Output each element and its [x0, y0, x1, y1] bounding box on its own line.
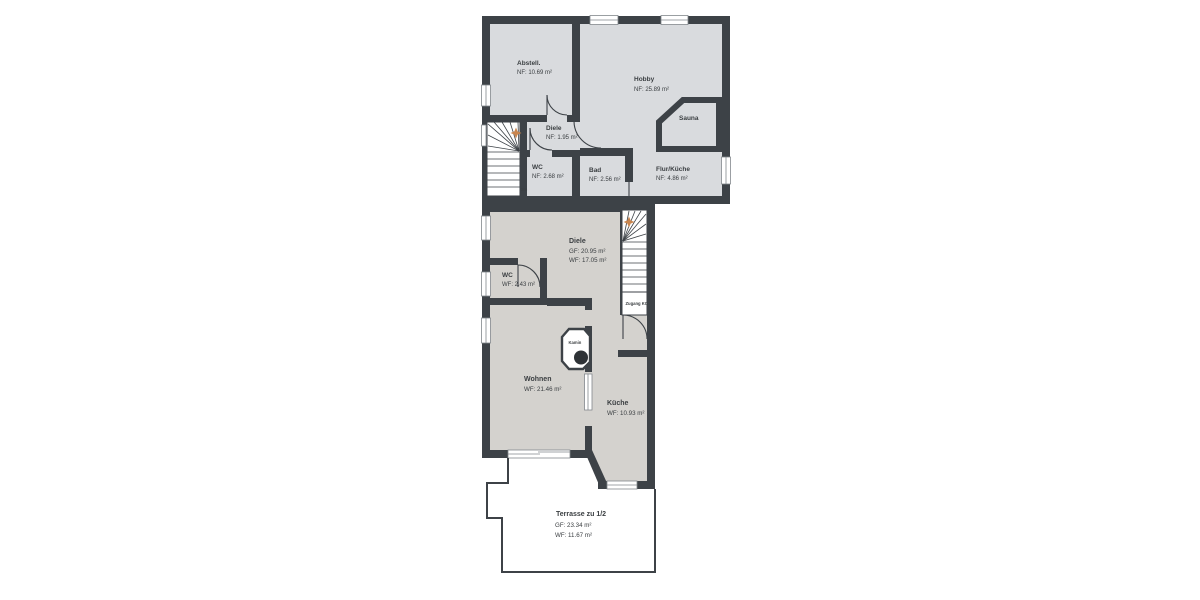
room-label-wc-eg: WC	[502, 272, 513, 279]
window	[482, 272, 491, 296]
room-label-flur-kueche: Flur/Küche	[656, 166, 690, 173]
room-area-diele-kg: NF: 1.95 m²	[546, 135, 578, 141]
room-area-wc-eg: WF: 2.43 m²	[502, 282, 535, 288]
basement-access-label: Zugang KG	[626, 301, 649, 306]
room-label-hobby: Hobby	[634, 76, 655, 83]
room-area-gf-diele: GF: 20.95 m²	[569, 248, 605, 255]
room-area-flur-kueche: NF: 4.86 m²	[656, 176, 688, 182]
window	[482, 318, 491, 343]
fireplace-label: Kamin	[569, 340, 582, 345]
interior-glass-panel	[585, 374, 593, 410]
basement-plan: Abstell. NF: 10.69 m² Hobby NF: 25.89 m²…	[482, 16, 731, 205]
terrace-label: Terrasse zu 1/2	[556, 511, 606, 518]
room-label-diele-kg: Diele	[546, 125, 562, 132]
room-label-wohnen: Wohnen	[524, 376, 551, 383]
terrace-sliding-door	[508, 450, 570, 458]
room-label-abstell: Abstell.	[517, 60, 541, 67]
stair-width-note: 2m	[521, 187, 528, 192]
room-area-wohnen: WF: 21.46 m²	[524, 386, 561, 393]
window	[722, 157, 731, 184]
room-area-abstell: NF: 10.69 m²	[517, 70, 552, 76]
room-area-bad: NF: 2.56 m²	[589, 177, 621, 183]
fireplace: Kamin	[562, 329, 590, 369]
room-label-sauna: Sauna	[679, 115, 699, 122]
room-label-kueche: Küche	[607, 400, 629, 407]
window	[482, 216, 491, 240]
ground-plan: Zugang KG Kamin Diele GF: 20.95 m² WF: 1…	[482, 204, 656, 489]
room-area-hobby: NF: 25.89 m²	[634, 87, 669, 93]
room-area-kueche: WF: 10.93 m²	[607, 410, 644, 417]
terrace-area-gf: GF: 23.34 m²	[555, 522, 591, 529]
fireplace-flue	[574, 351, 588, 365]
staircase-ground: Zugang KG	[622, 210, 648, 315]
room-label-diele-eg: Diele	[569, 238, 586, 245]
window	[590, 16, 618, 25]
window	[661, 16, 688, 25]
room-label-wc-kg: WC	[532, 164, 543, 171]
window	[482, 85, 491, 106]
room-area-wf-diele: WF: 17.05 m²	[569, 257, 606, 264]
room-label-bad: Bad	[589, 167, 601, 174]
floor-plan-canvas: Abstell. NF: 10.69 m² Hobby NF: 25.89 m²…	[0, 0, 1200, 600]
terrace-area-wf: WF: 11.67 m²	[555, 532, 592, 539]
room-area-wc-kg: NF: 2.68 m²	[532, 174, 564, 180]
floor-plan-page: Abstell. NF: 10.69 m² Hobby NF: 25.89 m²…	[0, 0, 1200, 600]
window	[607, 481, 637, 489]
staircase-basement	[487, 122, 522, 196]
